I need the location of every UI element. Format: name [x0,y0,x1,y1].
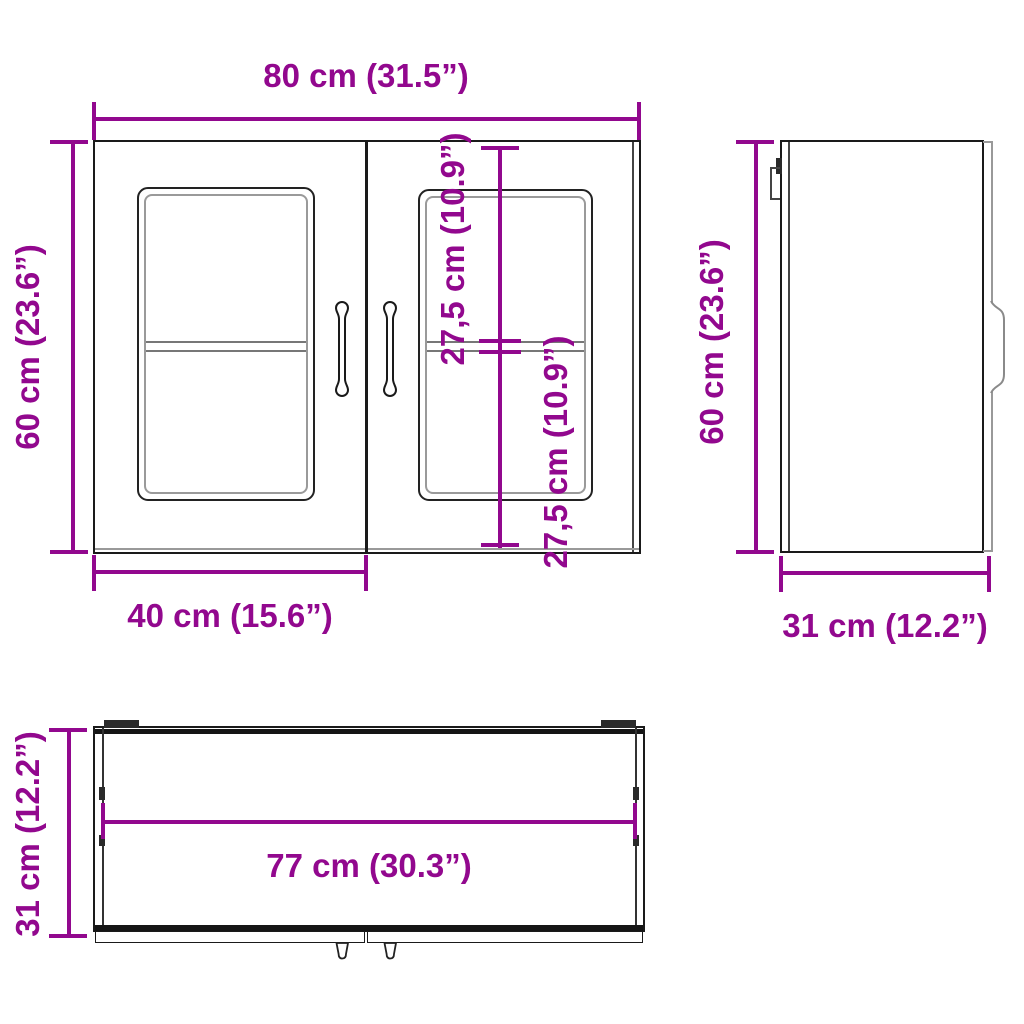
dim-top-depth-tick-top [49,728,87,732]
top-right-hinge-mark-a [633,787,639,800]
front-right-inner-edge [632,142,634,552]
top-right-door-edge [367,931,643,943]
dim-side-depth-tick-right [987,556,991,592]
left-door-shelf-line-lower [146,350,306,352]
dim-front-height-tick-bottom [50,550,88,554]
right-door-handle-icon [383,301,397,397]
dim-side-depth-line [779,571,991,575]
dim-front-width-tick-right [637,102,641,140]
side-left-inner-edge [788,142,790,551]
dim-top-inner-width-tick-right [633,803,637,839]
top-knob-left-icon [335,942,350,960]
left-door-shelf-line-upper [146,341,306,343]
side-cabinet-outline [780,140,984,553]
side-door-handle-icon [990,301,1010,393]
dim-front-height-tick-top [50,140,88,144]
dim-front-sections-tick-top [481,146,519,150]
dim-front-sections-tick-mid-lower [479,350,521,354]
dim-side-depth-tick-left [779,556,783,592]
side-hinge-bracket-top [770,167,780,169]
dim-front-sections-tick-bottom [481,543,519,547]
left-door-handle-icon [335,301,349,397]
dim-top-depth-label: 31 cm (12.2”) [9,731,47,936]
dim-top-inner-width-label: 77 cm (30.3”) [266,847,471,885]
top-knob-right-icon [383,942,398,960]
dim-front-door-width-label: 40 cm (15.6”) [127,597,332,635]
dim-front-door-width-tick-left [92,555,96,591]
dim-side-height-label: 60 cm (23.6”) [693,239,731,444]
dim-top-depth-tick-bottom [49,934,87,938]
front-door-divider [365,141,368,553]
dim-top-inner-width-line [103,820,636,824]
dim-front-door-width-tick-right [364,555,368,591]
side-hinge-bracket [770,167,772,200]
top-mount-bracket-left [104,720,139,728]
side-hinge-block [776,158,782,174]
top-back-panel [95,729,643,734]
top-mount-bracket-right [601,720,636,728]
dim-side-height-tick-bottom [736,550,774,554]
dim-front-sections-line [498,147,502,548]
dim-front-upper-section-label: 27,5 cm (10.9”) [434,133,472,366]
dim-front-lower-section-label: 27,5 cm (10.9”) [537,336,575,569]
dim-side-depth-label: 31 cm (12.2”) [782,607,987,645]
dim-front-width-tick-left [92,102,96,140]
cabinet-dimension-diagram: 80 cm (31.5”) 60 cm (23.6”) 27,5 cm (10.… [0,0,1024,1024]
dim-front-width-line [92,117,641,121]
left-door-glass-pane [144,194,308,494]
dim-front-width-label: 80 cm (31.5”) [263,57,468,95]
side-hinge-bracket-bottom [770,198,780,200]
dim-side-height-line [754,140,758,554]
dim-side-height-tick-top [736,140,774,144]
top-left-door-edge [95,931,365,943]
dim-front-height-label: 60 cm (23.6”) [9,244,47,449]
top-left-hinge-mark-a [99,787,105,800]
dim-front-sections-tick-mid-upper [479,339,521,343]
dim-front-height-line [71,140,75,554]
dim-top-depth-line [67,728,71,938]
dim-top-inner-width-tick-left [101,803,105,839]
dim-front-door-width-line [92,570,368,574]
top-cabinet-outline [93,726,645,932]
